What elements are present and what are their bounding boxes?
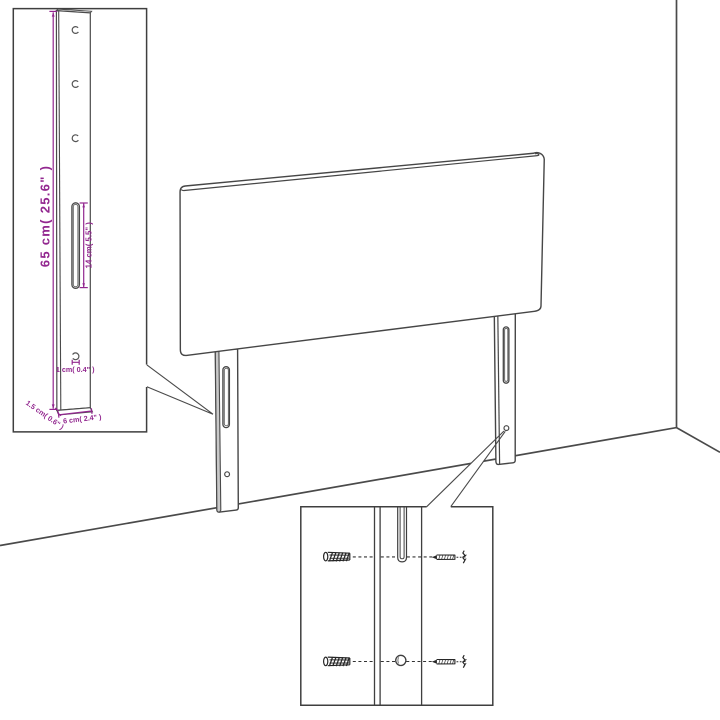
svg-text:1 cm( 0.4" ): 1 cm( 0.4" ) (56, 365, 95, 374)
svg-text:65 cm( 25.6" ): 65 cm( 25.6" ) (38, 165, 53, 267)
svg-text:14 cm( 5.5" ): 14 cm( 5.5" ) (85, 222, 94, 269)
